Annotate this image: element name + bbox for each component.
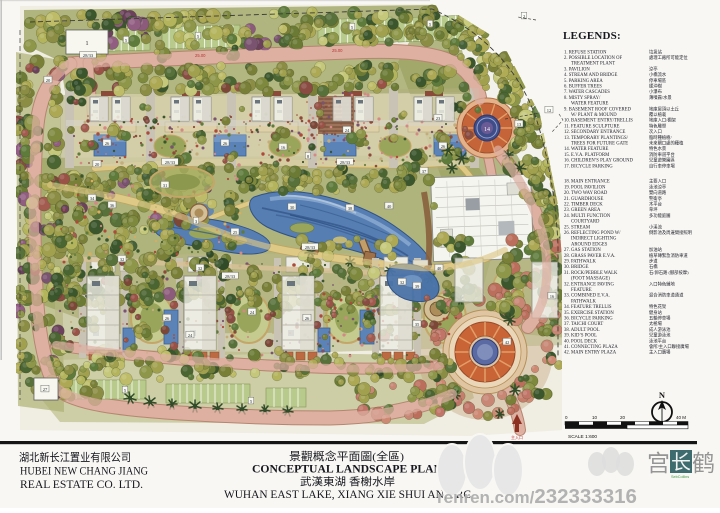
svg-text:自行車停車場: 自行車停車場 (649, 162, 675, 169)
svg-text:16. CHILDREN’S PLAY GROUND: 16. CHILDREN’S PLAY GROUND (564, 159, 634, 164)
svg-text:13. TEMPORARY PLANTINGS/: 13. TEMPORARY PLANTINGS/ (564, 136, 629, 141)
svg-text:薄噴霧/水景: 薄噴霧/水景 (649, 94, 672, 101)
svg-text:LEGENDS:: LEGENDS: (563, 30, 621, 42)
svg-text:處理工廠所可能定位: 處理工廠所可能定位 (649, 54, 688, 61)
svg-text:39. KID’S POOL: 39. KID’S POOL (564, 334, 597, 339)
svg-text:涼亭: 涼亭 (649, 65, 658, 71)
svg-text:10. BASEMENT ENTRY/TRELLIS: 10. BASEMENT ENTRY/TRELLIS (564, 119, 633, 124)
svg-text:24. MULTI FUNCTION: 24. MULTI FUNCTION (564, 214, 611, 219)
svg-text:WATER FEATURE: WATER FEATURE (571, 102, 609, 107)
svg-text:41. CONNECTING PLAZA: 41. CONNECTING PLAZA (564, 345, 618, 350)
svg-text:1. REFUSE STATION: 1. REFUSE STATION (564, 50, 607, 55)
svg-text:26. REFLECTING POND W/: 26. REFLECTING POND W/ (564, 231, 621, 236)
svg-text:8. MISTY SPRAY/: 8. MISTY SPRAY/ (564, 96, 601, 101)
svg-text:23. GREEN AREA: 23. GREEN AREA (564, 208, 601, 213)
svg-text:27. GAS STATION: 27. GAS STATION (564, 248, 601, 253)
svg-text:混合消防車道通道: 混合消防車道通道 (649, 292, 684, 299)
svg-text:12: 12 (547, 108, 552, 113)
svg-text:19. POOL PAVILION: 19. POOL PAVILION (564, 185, 606, 190)
svg-text:9. BASEMENT ROOF COVERED: 9. BASEMENT ROOF COVERED (564, 107, 631, 112)
svg-text:31. ROCK/PEBBLE WALK: 31. ROCK/PEBBLE WALK (564, 271, 618, 276)
svg-text:38. ADULT POOL: 38. ADULT POOL (564, 328, 600, 333)
svg-text:入口特色鋪地: 入口特色鋪地 (649, 280, 675, 287)
svg-text:COURTYARD: COURTYARD (571, 220, 600, 225)
svg-text:INDIRECT LIGHTING: INDIRECT LIGHTING (571, 237, 617, 242)
svg-text:15. E.V.A. PLATFORM: 15. E.V.A. PLATFORM (564, 153, 610, 158)
svg-text:石/卵石路 (腳部按摩): 石/卵石路 (腳部按摩) (649, 269, 689, 276)
svg-text:35. EXERCISE STATION: 35. EXERCISE STATION (564, 311, 614, 316)
svg-text:N: N (659, 390, 666, 400)
svg-text:6. BUFFER TREES: 6. BUFFER TREES (564, 85, 602, 90)
svg-text:18. MAIN ENTRANCE: 18. MAIN ENTRANCE (564, 180, 610, 185)
svg-text:4. STREAM AND BRIDGE: 4. STREAM AND BRIDGE (564, 73, 618, 78)
svg-text:25. STREAM: 25. STREAM (564, 225, 591, 230)
svg-text:12. SECONDARY ENTRANCE: 12. SECONDARY ENTRANCE (564, 130, 626, 135)
svg-text:36. BICYCLE PARKING: 36. BICYCLE PARKING (564, 317, 613, 322)
svg-text:TREES FOR FUTURE GATE: TREES FOR FUTURE GATE (571, 142, 628, 147)
svg-text:42. MAIN ENTRY PLAZA: 42. MAIN ENTRY PLAZA (564, 351, 617, 356)
svg-text:(FOOT MASSAGE): (FOOT MASSAGE) (571, 277, 610, 282)
svg-text:11. FEATURE SCULPTURE: 11. FEATURE SCULPTURE (564, 124, 620, 129)
svg-text:33. COMBINED E.V.A.: 33. COMBINED E.V.A. (564, 294, 610, 299)
svg-text:W/ PLANT & MOUND: W/ PLANT & MOUND (571, 113, 617, 118)
svg-text:14. WATER FEATURE: 14. WATER FEATURE (564, 147, 608, 152)
svg-text:倒影池及周邊間接照明: 倒影池及周邊間接照明 (649, 229, 692, 236)
svg-text:22. TIMBER DECK: 22. TIMBER DECK (564, 203, 603, 208)
svg-text:32. ENTRANCE PAVING: 32. ENTRANCE PAVING (564, 282, 614, 287)
svg-text:TREATMENT PLANT: TREATMENT PLANT (571, 62, 615, 67)
svg-text:AROUND EDGES: AROUND EDGES (571, 242, 608, 247)
svg-text:20. TWO WAY ROAD: 20. TWO WAY ROAD (564, 191, 608, 196)
svg-text:21. GUARDHOUSE: 21. GUARDHOUSE (564, 197, 603, 202)
svg-text:主入口: 主入口 (511, 434, 523, 440)
svg-text:17. BICYCLE PARKING: 17. BICYCLE PARKING (564, 164, 613, 169)
svg-text:30. BRIDGE: 30. BRIDGE (564, 265, 589, 270)
svg-text:34. FEATURE TRELLIS: 34. FEATURE TRELLIS (564, 305, 612, 310)
svg-text:37. TAICHI COURT: 37. TAICHI COURT (564, 322, 603, 327)
svg-text:FEATURE: FEATURE (571, 288, 592, 293)
svg-text:40. POOL DECK: 40. POOL DECK (564, 339, 598, 344)
svg-text:多功能庭園: 多功能庭園 (649, 212, 670, 219)
svg-text:主入口廣場: 主入口廣場 (649, 349, 671, 356)
svg-text:2. POSSIBLE LOCATION OF: 2. POSSIBLE LOCATION OF (564, 56, 622, 61)
svg-text:5. PARKING AREA: 5. PARKING AREA (564, 79, 603, 84)
svg-text:29. PATHWALK: 29. PATHWALK (564, 260, 596, 265)
svg-text:28. GRASS PAVER E.V.A.: 28. GRASS PAVER E.V.A. (564, 254, 615, 259)
svg-text:7. WATER CASCADES: 7. WATER CASCADES (564, 90, 610, 95)
svg-text:3. PAVILION: 3. PAVILION (564, 67, 590, 72)
svg-text:PATHWALK: PATHWALK (571, 299, 596, 304)
